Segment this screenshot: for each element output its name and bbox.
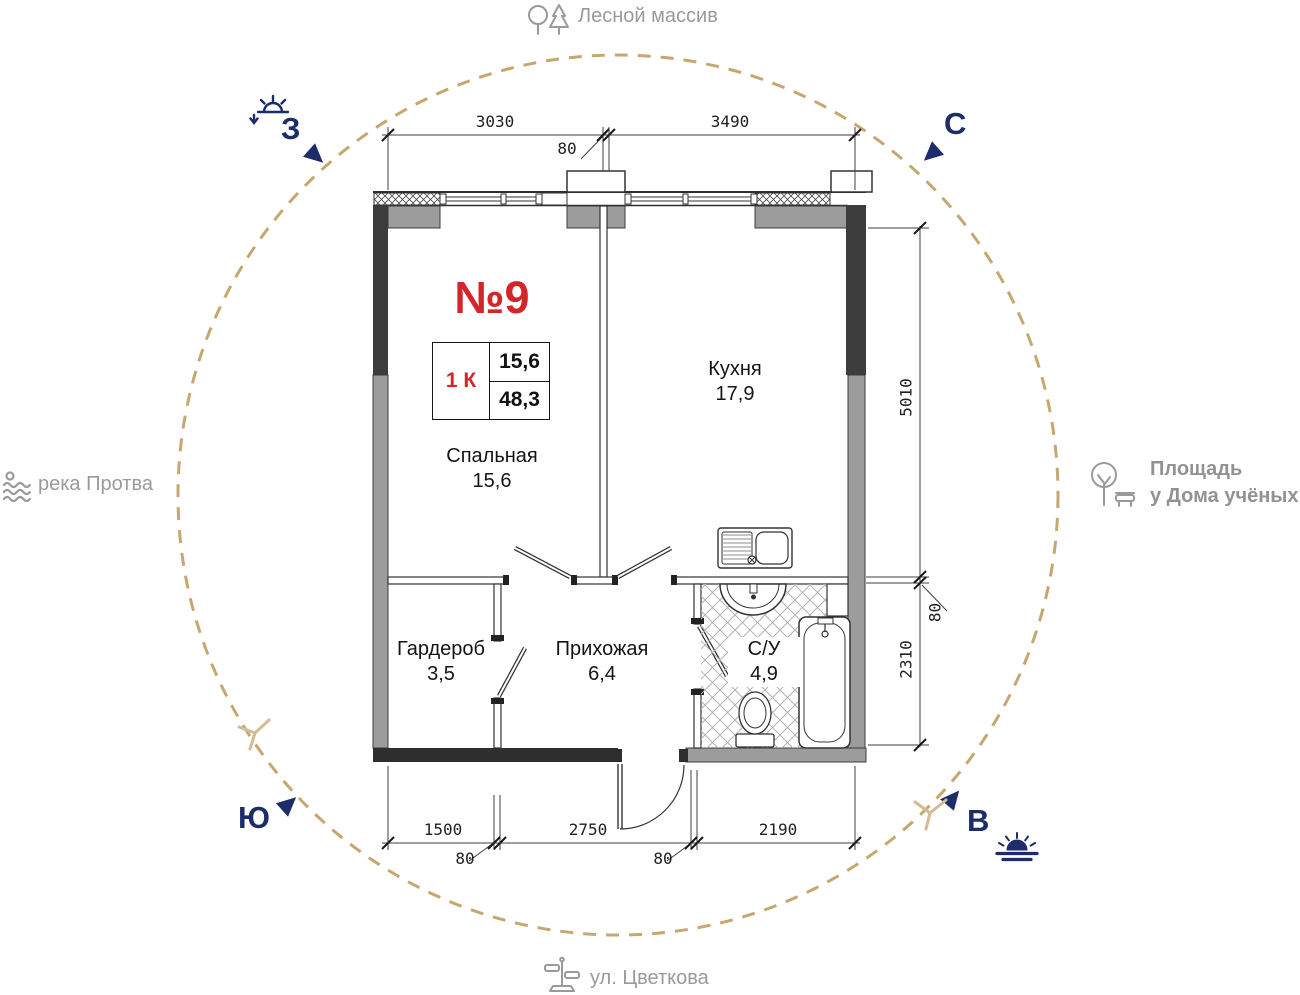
dim-bottom-right: 2190 bbox=[738, 820, 818, 839]
landmark-square: Площадь у Дома учёных bbox=[1150, 456, 1298, 510]
room-label-hallway: Прихожая6,4 bbox=[537, 637, 667, 687]
compass-south: Ю bbox=[238, 800, 270, 836]
south-arrow-icon bbox=[276, 791, 302, 817]
apartment-info-table: 1 К 15,6 48,3 bbox=[432, 342, 550, 420]
dim-right-upper: 5010 bbox=[897, 358, 916, 438]
dim-right-lower: 2310 bbox=[897, 620, 916, 700]
apartment-total-area: 48,3 bbox=[490, 382, 549, 420]
bathtub bbox=[799, 617, 850, 748]
apartment-number: №9 bbox=[437, 272, 547, 324]
shaft-protrusion bbox=[567, 171, 625, 192]
dim-top-offset: 80 bbox=[549, 139, 585, 158]
kitchen-sink bbox=[718, 528, 792, 568]
north-arrow-icon bbox=[918, 141, 944, 167]
room-label-kitchen: Кухня17,9 bbox=[655, 357, 815, 407]
compass-east: В bbox=[967, 803, 989, 839]
toilet bbox=[736, 692, 774, 747]
landmark-forest: Лесной массив bbox=[578, 5, 718, 28]
dim-top-right: 3490 bbox=[690, 112, 770, 131]
dim-bottom-offset-1: 80 bbox=[447, 849, 483, 868]
landmark-river: река Протва bbox=[38, 473, 153, 496]
washing-box bbox=[827, 584, 848, 616]
room-label-wardrobe: Гардероб3,5 bbox=[376, 637, 506, 687]
dim-bottom-middle: 2750 bbox=[548, 820, 628, 839]
room-label-bedroom: Спальная15,6 bbox=[412, 444, 572, 494]
apartment-type: 1 К bbox=[433, 343, 490, 419]
forest-icon bbox=[526, 2, 574, 36]
dim-top-left: 3030 bbox=[455, 112, 535, 131]
room-label-bathroom: С/У4,9 bbox=[728, 637, 800, 687]
dim-bottom-left: 1500 bbox=[403, 820, 483, 839]
branch-mark-icon bbox=[915, 800, 946, 829]
apartment-living-area: 15,6 bbox=[490, 343, 549, 382]
compass-north: С bbox=[944, 106, 966, 142]
sunrise-icon bbox=[993, 826, 1043, 864]
dim-bottom-offset-2: 80 bbox=[645, 849, 681, 868]
street-sign-icon bbox=[540, 956, 584, 995]
floor-plan-page: Лесной массив река Протва Площадь у Дома… bbox=[0, 0, 1300, 995]
branch-mark-icon bbox=[239, 720, 269, 749]
park-bench-icon bbox=[1088, 459, 1138, 509]
landmark-street: ул. Цветкова bbox=[590, 967, 709, 990]
corner-protrusion bbox=[831, 171, 872, 192]
dim-right-offset: 80 bbox=[926, 595, 945, 631]
river-icon bbox=[2, 470, 34, 504]
compass-west: З bbox=[281, 111, 300, 147]
